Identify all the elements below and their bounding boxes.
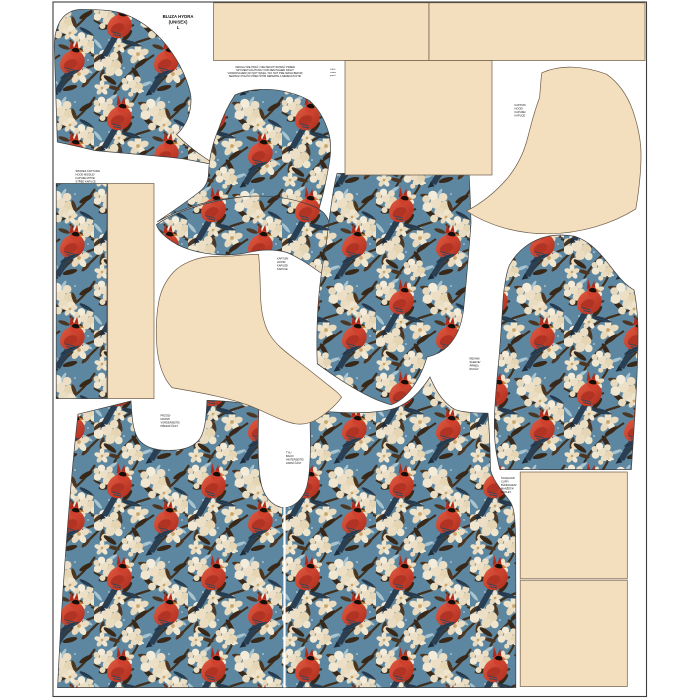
svg-text:100%: 100% [330,69,336,71]
svg-text:KAPUZE/: KAPUZE/ [515,110,526,114]
svg-text:ÄRMEL/: ÄRMEL/ [470,364,480,368]
svg-text:RĘKAW/: RĘKAW/ [470,357,480,361]
svg-text:L: L [177,25,180,30]
svg-text:KAPUCE: KAPUCE [277,267,288,271]
svg-text:NÁPLET: NÁPLET [501,490,512,494]
svg-text:SLEEVE/: SLEEVE/ [470,360,481,364]
svg-text:(UNISEX): (UNISEX) [169,20,188,25]
svg-text:KAPUZE/: KAPUZE/ [277,264,288,268]
svg-text:VORDERSEITE/: VORDERSEITE/ [161,421,181,425]
svg-text:HOOD MIDDLE/: HOOD MIDDLE/ [76,173,95,177]
svg-text:HINTERSEITE/: HINTERSEITE/ [286,458,304,462]
svg-text:FRONT/: FRONT/ [161,417,171,421]
svg-text:HOOD/: HOOD/ [277,260,286,264]
svg-text:panel: panel [330,75,336,77]
svg-text:CUFF/: CUFF/ [501,480,509,484]
svg-text:KAPUZE MITTE/: KAPUZE MITTE/ [76,176,96,180]
svg-text:BLUZA HYDRA: BLUZA HYDRA [163,14,194,19]
svg-text:KAPUCE: KAPUCE [515,114,526,118]
svg-text:BÜNDCHEN/: BÜNDCHEN/ [501,483,517,487]
svg-text:HOOD/: HOOD/ [515,107,524,111]
svg-text:KAPTUR/: KAPTUR/ [277,257,289,261]
svg-text:cotton: cotton [330,71,337,74]
svg-text:KAPTUR/: KAPTUR/ [515,103,527,107]
svg-text:TYŁ/: TYŁ/ [286,451,292,455]
svg-text:RUKÁV: RUKÁV [470,367,479,371]
svg-text:BACK/: BACK/ [286,454,294,458]
